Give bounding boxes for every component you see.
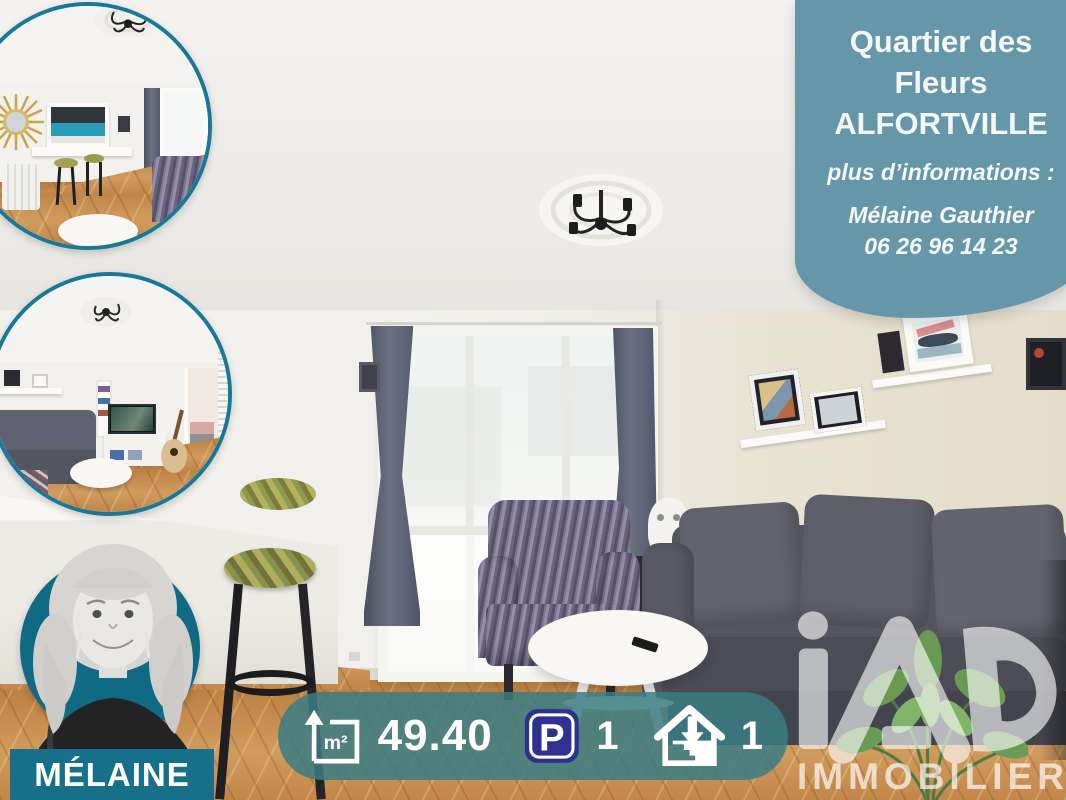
inset-bar-ledge	[32, 147, 132, 156]
info-banner: Quartier des Fleurs ALFORTVILLE plus d’i…	[795, 0, 1066, 318]
property-stats-bar: m² 49.40 P 1 1	[278, 692, 788, 780]
iad-logo	[790, 596, 1066, 768]
inset-stool-leg	[71, 167, 77, 205]
table-top	[528, 610, 708, 686]
photo-inset-kitchen	[0, 2, 212, 250]
agent-name-banner: MÉLAINE	[10, 749, 214, 800]
inset-passthrough-interior	[51, 107, 105, 143]
inset2-shelf-frame	[2, 368, 22, 388]
banner-line1: Quartier des	[795, 22, 1066, 63]
inset-stool-leg	[99, 162, 102, 196]
banner-info-label: plus d’informations :	[795, 159, 1066, 186]
area-unit-label: m²	[324, 732, 348, 754]
inset-sunburst-mirror	[0, 92, 46, 152]
inset-stool	[84, 154, 104, 198]
inset-passthrough	[47, 103, 109, 147]
picture-art	[1034, 348, 1044, 358]
inset-radiator	[2, 164, 40, 210]
inset-stool-leg	[56, 167, 62, 205]
inset2-ceiling-light	[78, 292, 134, 338]
brand-immobilier-label: IMMOBILIER	[797, 756, 1066, 798]
listing-promo-image: Quartier des Fleurs ALFORTVILLE plus d’i…	[0, 0, 1066, 800]
inset2-shelf	[0, 388, 62, 394]
parking-count: 1	[596, 714, 619, 759]
stool-footrest	[228, 670, 314, 696]
inset2-coffee-table	[70, 458, 132, 488]
banner-line2: Fleurs	[795, 63, 1066, 104]
inset2-sofa-throw	[0, 470, 48, 510]
inset2-plant	[188, 472, 222, 502]
inset-stool-leg	[86, 162, 89, 196]
inset2-sofa-back	[0, 410, 96, 454]
wall-outlet	[349, 652, 360, 661]
agent-name-label: MÉLAINE	[34, 756, 190, 793]
picture-art	[911, 317, 964, 363]
curtain-rod	[366, 322, 662, 325]
stool-seat	[240, 478, 316, 510]
inset-wall-frame	[118, 116, 130, 132]
parking-icon: P	[523, 706, 581, 766]
parking-letter: P	[539, 716, 565, 759]
inset2-tv	[108, 404, 156, 434]
inset-stool	[54, 158, 78, 206]
wall-frame-small	[359, 362, 380, 392]
inset-round-table	[58, 214, 138, 248]
ceiling-light	[533, 168, 669, 270]
banner-agent-name: Mélaine Gauthier	[795, 202, 1066, 229]
inset-armchair	[152, 156, 208, 222]
picture-art	[759, 379, 796, 421]
inset2-books	[98, 386, 110, 392]
inset2-tv-image	[111, 407, 153, 431]
banner-phone: 06 26 96 14 23	[795, 233, 1066, 260]
inset2-guitar	[160, 408, 200, 478]
area-icon: m²	[302, 705, 362, 767]
framed-picture	[809, 387, 866, 434]
framed-picture	[748, 369, 805, 431]
area-value: 49.40	[378, 711, 493, 761]
framed-picture	[1026, 338, 1066, 390]
picture-art	[818, 395, 857, 426]
inset2-shelf-frame	[32, 374, 48, 388]
banner-city: ALFORTVILLE	[795, 104, 1066, 145]
stool-seat	[224, 548, 316, 588]
window-view	[392, 386, 502, 506]
cellar-count: 1	[741, 714, 764, 759]
cellar-icon	[654, 702, 725, 770]
photo-inset-livingroom	[0, 272, 232, 516]
inset2-media-box	[128, 450, 142, 460]
inset-ceiling-light	[88, 2, 168, 50]
